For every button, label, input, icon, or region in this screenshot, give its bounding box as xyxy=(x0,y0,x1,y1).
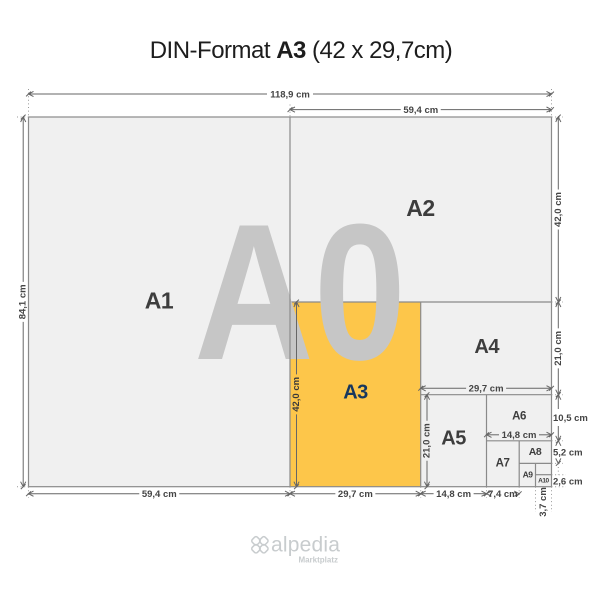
svg-text:7,4 cm: 7,4 cm xyxy=(488,489,518,500)
svg-text:42,0 cm: 42,0 cm xyxy=(553,192,564,227)
svg-text:5,2 cm: 5,2 cm xyxy=(553,447,583,458)
svg-text:A9: A9 xyxy=(523,470,534,480)
svg-text:21,0 cm: 21,0 cm xyxy=(422,423,433,458)
svg-text:29,7 cm: 29,7 cm xyxy=(469,384,504,395)
svg-text:10,5 cm: 10,5 cm xyxy=(553,413,588,424)
svg-text:59,4 cm: 59,4 cm xyxy=(403,105,438,116)
svg-text:alpedia: alpedia xyxy=(271,534,340,557)
svg-text:3,7 cm: 3,7 cm xyxy=(538,487,549,517)
svg-text:118,9 cm: 118,9 cm xyxy=(270,89,310,100)
svg-text:14,8 cm: 14,8 cm xyxy=(436,489,471,500)
svg-text:2,6 cm: 2,6 cm xyxy=(553,476,583,487)
svg-text:A4: A4 xyxy=(474,336,500,358)
svg-text:84,1 cm: 84,1 cm xyxy=(18,284,29,319)
svg-text:Marktplatz: Marktplatz xyxy=(298,556,338,565)
svg-text:21,0 cm: 21,0 cm xyxy=(553,331,564,366)
svg-text:A0: A0 xyxy=(194,184,406,401)
svg-text:A1: A1 xyxy=(145,288,174,314)
svg-text:A2: A2 xyxy=(406,195,434,221)
svg-text:DIN-Format A3 (42 x 29,7cm): DIN-Format A3 (42 x 29,7cm) xyxy=(150,37,453,64)
svg-text:A6: A6 xyxy=(512,411,526,423)
svg-text:A3: A3 xyxy=(343,381,368,403)
svg-text:A5: A5 xyxy=(441,428,466,450)
svg-text:A7: A7 xyxy=(496,457,510,469)
svg-text:42,0 cm: 42,0 cm xyxy=(291,377,302,412)
svg-text:A8: A8 xyxy=(529,446,542,458)
svg-text:A10: A10 xyxy=(538,477,549,484)
svg-text:29,7 cm: 29,7 cm xyxy=(338,489,373,500)
svg-text:59,4 cm: 59,4 cm xyxy=(142,489,177,500)
svg-text:14,8 cm: 14,8 cm xyxy=(502,430,537,441)
